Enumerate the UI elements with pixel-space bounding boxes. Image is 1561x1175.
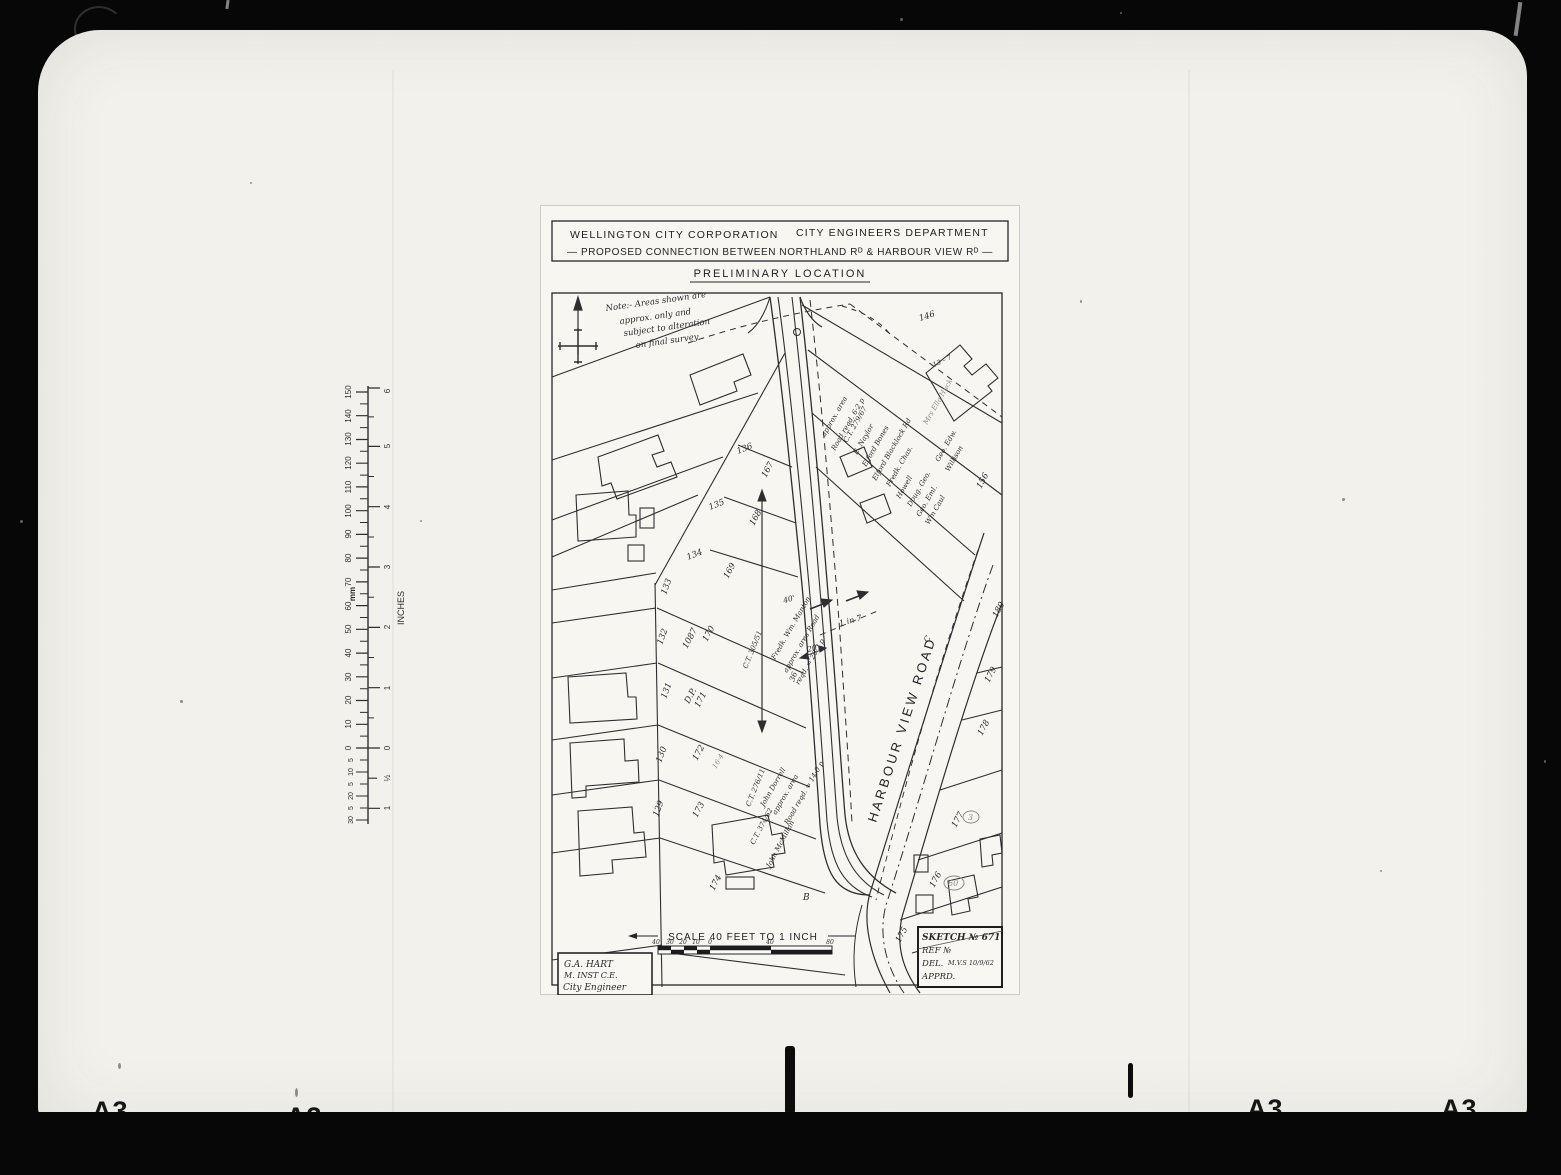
ruler-mm-belowzero-ticks [356,760,368,820]
dust-speck [250,182,252,184]
ruler-mm-belowzero: 20 [348,792,355,800]
dust-speck [420,520,422,522]
ruler-inch-belowzero-ticks [368,778,380,808]
ruler-mm-label: 110 [344,480,353,493]
ruler-mm-label: 10 [344,719,353,728]
ruler-mm-label: 40 [344,648,353,657]
film-bottom-band [0,1112,1561,1175]
scale-tick: 30 [666,939,674,946]
ruler-mm-label: 100 [344,504,353,518]
scale-tick: 40 [765,939,774,946]
ruler-inch-belowzero: ½ [383,774,392,781]
point-b-label: B [802,893,810,903]
dust-speck [295,1088,298,1097]
dust-speck [180,700,183,703]
drawing-sheet: WELLINGTON CITY CORPORATION CITY ENGINEE… [540,205,1020,995]
dust-speck [1380,870,1382,872]
ruler-inch-label: 2 [383,624,392,629]
signature-line: City Engineer [563,983,627,993]
scale-tick: 40 [651,939,660,946]
ruler-mm-label: 0 [344,745,353,750]
film-speck [1120,12,1122,14]
sketch-del: DEL. [921,959,943,969]
scale-tick: 80 [826,939,834,946]
ruler-mm-belowzero: 30 [348,816,355,824]
ruler-inch-label: 0 [383,745,392,750]
registration-bar [1128,1063,1133,1098]
ruler-mm-belowzero: 5 [348,806,355,810]
pencil-mark: 60 [948,879,958,888]
ruler-mm-belowzero: 5 [348,758,355,762]
scale-tick: 0 [708,939,712,946]
page-fold-streak [1188,70,1190,1140]
ruler-inch-label: 3 [383,564,392,569]
ruler-mm-label: 60 [344,601,353,610]
ruler-inch-label: 4 [383,504,392,509]
scale-tick: 20 [678,939,687,946]
sheet-edge [541,206,1020,995]
ruler-mm-label: 30 [344,672,353,681]
title-stage: PRELIMINARY LOCATION [694,268,867,280]
title-department: CITY ENGINEERS DEPARTMENT [796,227,989,239]
title-subject: — PROPOSED CONNECTION BETWEEN NORTHLAND … [567,247,993,258]
film-speck [20,520,23,523]
signature-line: M. INST C.E. [563,971,618,980]
sketch-ref: REF № [921,946,951,956]
sketch-del-value: M.V.S 10/9/62 [947,959,994,967]
dust-speck [1342,498,1345,501]
sketch-apprd: APPRD. [921,972,955,982]
scale-label: SCALE 40 FEET TO 1 INCH [668,932,818,943]
ruler-mm-label: 90 [344,529,353,538]
signature-block: G.A. HART M. INST C.E. City Engineer [558,953,652,995]
sketch-block: SKETCH № 671 REF № DEL. M.V.S 10/9/62 AP… [918,927,1002,987]
dust-speck [118,1063,121,1069]
ruler-mm-label: 150 [344,385,353,399]
sketch-number: SKETCH № 671 [922,933,1000,943]
ruler-inch-label: 5 [383,443,392,448]
ruler-mm-belowzero: 10 [348,768,355,776]
pencil-mark: 3 [968,813,973,822]
ruler-inch-belowzero: 1 [383,805,392,810]
ruler-inch-label: 6 [383,388,392,393]
ruler-mm-label: 70 [344,577,353,586]
reference-ruler: 150 140 130 120 110 100 90 80 70 60 50 4… [330,378,410,830]
dust-speck [1080,300,1082,303]
title-organisation: WELLINGTON CITY CORPORATION [570,229,779,241]
ruler-mm-label: 20 [344,695,353,704]
scale-tick: 10 [692,939,700,946]
film-scratch-mark [1514,2,1523,36]
ruler-mm-minor-ticks [360,404,368,736]
film-speck [1544,760,1546,763]
ruler-mm-label: 80 [344,553,353,562]
ruler-mm-label: 140 [344,409,353,423]
ruler-mm-label: 130 [344,432,353,446]
film-frame: 150 140 130 120 110 100 90 80 70 60 50 4… [0,0,1561,1175]
registration-bar [785,1046,795,1114]
ruler-inch-ticks [368,388,380,748]
signature-line: G.A. HART [564,960,614,970]
ruler-mm-belowzero: 5 [348,782,355,786]
ruler-mm-label: 50 [344,624,353,633]
ruler-mm-unit: mm [348,587,357,601]
ruler-inch-unit: INCHES [396,591,406,625]
film-scratch-mark [225,0,229,9]
ruler-mm-label: 120 [344,456,353,470]
film-speck [900,18,903,21]
ruler-inch-label: 1 [383,685,392,690]
